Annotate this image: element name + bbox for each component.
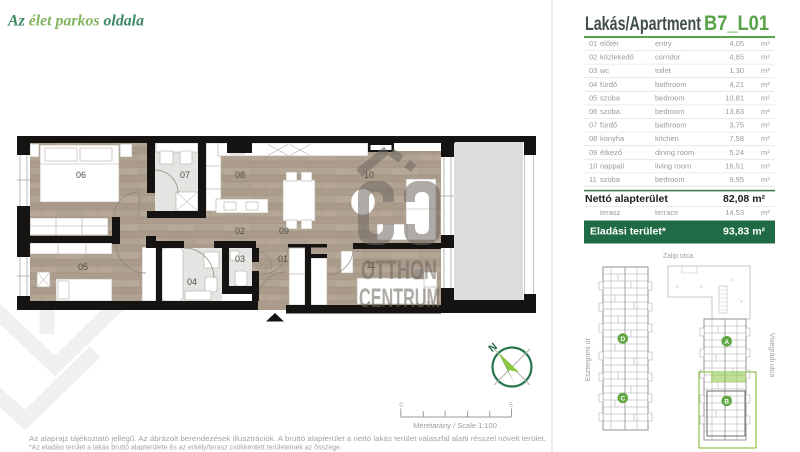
svg-text:02: 02 [589, 53, 597, 62]
svg-text:06: 06 [76, 170, 86, 180]
svg-text:9,95: 9,95 [729, 175, 744, 184]
svg-text:Nettó alapterület: Nettó alapterület [585, 193, 668, 205]
svg-text:02: 02 [235, 226, 245, 236]
svg-text:10,81: 10,81 [725, 93, 744, 102]
svg-text:03: 03 [589, 66, 597, 75]
svg-text:Az alaprajz tájékoztató jelleg: Az alaprajz tájékoztató jellegű. Az ábrá… [29, 436, 546, 443]
svg-text:A: A [724, 339, 729, 346]
svg-text:szoba: szoba [600, 107, 621, 116]
svg-text:m²: m² [761, 93, 770, 102]
svg-text:m²: m² [761, 80, 770, 89]
svg-text:m²: m² [761, 66, 770, 75]
svg-text:toilet: toilet [655, 66, 672, 75]
svg-text:03: 03 [235, 254, 245, 264]
svg-text:C: C [620, 396, 625, 403]
svg-text:living room: living room [655, 161, 691, 170]
svg-text:07: 07 [589, 121, 597, 130]
svg-text:82,08 m²: 82,08 m² [723, 193, 766, 205]
svg-text:Zalip utca: Zalip utca [663, 253, 693, 260]
svg-text:szoba: szoba [600, 175, 621, 184]
svg-text:terasz: terasz [600, 208, 621, 217]
svg-text:m²: m² [761, 121, 770, 130]
svg-text:m²: m² [761, 107, 770, 116]
svg-text:09: 09 [279, 226, 289, 236]
svg-text:corridor: corridor [655, 53, 681, 62]
svg-text:D: D [620, 336, 625, 343]
svg-text:B: B [724, 398, 729, 405]
svg-text:m²: m² [761, 208, 770, 217]
svg-text:terrace: terrace [655, 208, 678, 217]
svg-text:4,21: 4,21 [729, 80, 744, 89]
svg-text:01: 01 [278, 254, 288, 264]
svg-text:4,85: 4,85 [729, 53, 744, 62]
svg-text:09: 09 [589, 148, 597, 157]
svg-text:06: 06 [589, 107, 597, 116]
svg-text:dining room: dining room [655, 148, 694, 157]
svg-text:3,75: 3,75 [729, 121, 744, 130]
svg-text:közlekedő: közlekedő [600, 53, 634, 62]
svg-text:OTTHON: OTTHON [361, 255, 437, 285]
svg-text:05: 05 [589, 93, 597, 102]
svg-text:10: 10 [589, 161, 597, 170]
svg-text:kitchen: kitchen [655, 134, 679, 143]
svg-text:bedroom: bedroom [655, 175, 685, 184]
svg-text:m²: m² [761, 53, 770, 62]
svg-text:Eladási terület*: Eladási terület* [590, 226, 667, 238]
svg-text:bathroom: bathroom [655, 121, 687, 130]
svg-text:konyha: konyha [600, 134, 625, 143]
svg-text:05: 05 [78, 262, 88, 272]
svg-text:08: 08 [235, 170, 245, 180]
svg-text:fürdő: fürdő [600, 121, 617, 130]
svg-text:04: 04 [589, 80, 597, 89]
svg-text:bathroom: bathroom [655, 80, 687, 89]
svg-text:14,53: 14,53 [725, 208, 744, 217]
svg-text:wc: wc [599, 66, 609, 75]
svg-text:Lakás/Apartment: Lakás/Apartment [585, 14, 701, 35]
svg-text:04: 04 [187, 277, 197, 287]
svg-text:Méretarány / Scale 1:100: Méretarány / Scale 1:100 [413, 421, 497, 430]
svg-text:07: 07 [180, 170, 190, 180]
svg-text:16,51: 16,51 [725, 161, 744, 170]
svg-text:CENTRUM: CENTRUM [359, 283, 440, 313]
svg-text:08: 08 [589, 134, 597, 143]
svg-text:13,83: 13,83 [725, 107, 744, 116]
svg-text:m²: m² [761, 134, 770, 143]
svg-text:5,24: 5,24 [729, 148, 744, 157]
svg-text:m²: m² [761, 39, 770, 48]
svg-text:93,83 m²: 93,83 m² [723, 226, 766, 238]
svg-text:1,30: 1,30 [729, 66, 744, 75]
svg-text:4,05: 4,05 [729, 39, 744, 48]
svg-text:fürdő: fürdő [600, 80, 617, 89]
svg-text:11: 11 [589, 175, 597, 184]
svg-text:étkező: étkező [600, 148, 622, 157]
svg-text:m²: m² [761, 148, 770, 157]
svg-text:Visegrádi utca: Visegrádi utca [768, 333, 775, 377]
svg-text:szoba: szoba [600, 93, 621, 102]
svg-text:Az élet parkos oldala: Az élet parkos oldala [7, 13, 144, 30]
svg-text:B7_L01: B7_L01 [704, 12, 769, 35]
svg-text:m²: m² [761, 161, 770, 170]
svg-text:bedroom: bedroom [655, 107, 685, 116]
svg-text:7,58: 7,58 [729, 134, 744, 143]
svg-text:előtér: előtér [600, 39, 619, 48]
svg-text:entry: entry [655, 39, 672, 48]
svg-text:01: 01 [589, 39, 597, 48]
svg-text:m²: m² [761, 175, 770, 184]
svg-text:nappali: nappali [600, 161, 625, 170]
svg-text:*Az eladási terület a lakás br: *Az eladási terület a lakás bruttó alapt… [29, 445, 342, 452]
svg-text:Esztergomi út: Esztergomi út [585, 339, 592, 382]
svg-text:bedroom: bedroom [655, 93, 685, 102]
